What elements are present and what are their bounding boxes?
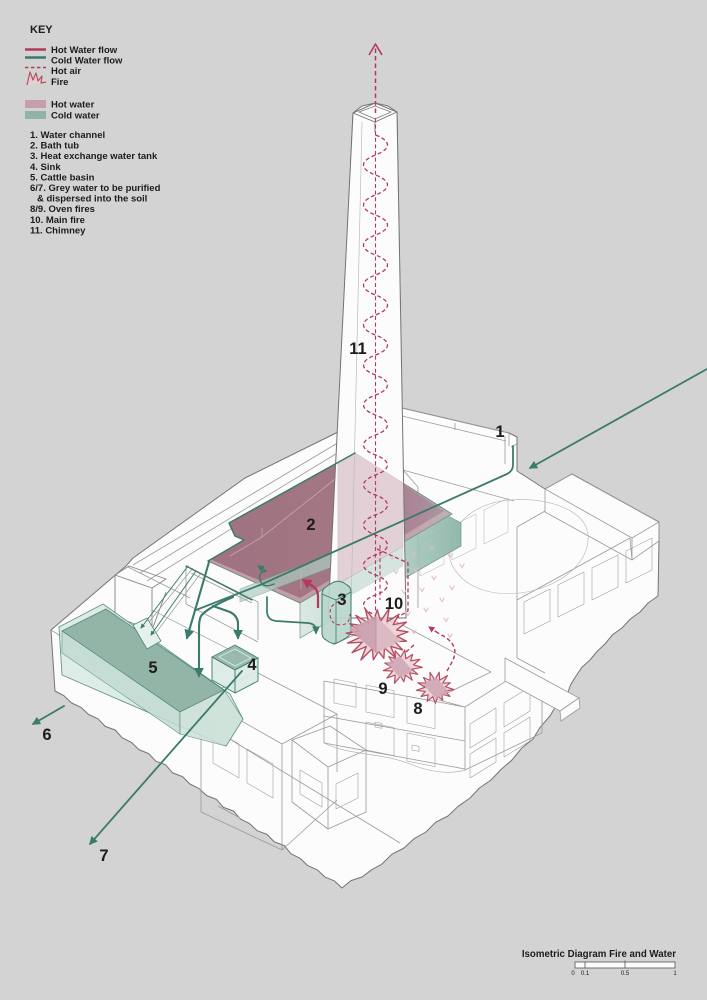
svg-text:6/7. Grey water to be purified: 6/7. Grey water to be purified: [30, 183, 161, 194]
svg-text:3. Heat exchange water tank: 3. Heat exchange water tank: [30, 151, 158, 162]
svg-text:5: 5: [148, 659, 157, 677]
svg-text:3: 3: [337, 591, 346, 609]
svg-text:& dispersed into the soil: & dispersed into the soil: [37, 194, 147, 205]
svg-text:2: 2: [306, 516, 315, 534]
svg-text:11. Chimney: 11. Chimney: [30, 225, 86, 236]
svg-text:Isometric Diagram Fire and Wat: Isometric Diagram Fire and Water: [522, 949, 676, 960]
svg-text:9: 9: [378, 680, 387, 698]
svg-text:0.5: 0.5: [621, 971, 630, 977]
svg-text:10: 10: [385, 595, 403, 613]
svg-text:Hot Water flow: Hot Water flow: [51, 45, 118, 56]
svg-text:KEY: KEY: [30, 24, 53, 36]
svg-text:0.1: 0.1: [581, 971, 590, 977]
svg-text:8: 8: [413, 700, 422, 718]
svg-text:4: 4: [247, 656, 257, 674]
svg-text:11: 11: [349, 340, 366, 358]
svg-text:Hot air: Hot air: [51, 66, 81, 77]
svg-text:Hot water: Hot water: [51, 100, 95, 111]
svg-text:5. Cattle basin: 5. Cattle basin: [30, 172, 95, 183]
svg-text:8/9. Oven fires: 8/9. Oven fires: [30, 204, 95, 215]
svg-text:6: 6: [42, 726, 51, 744]
svg-text:2. Bath tub: 2. Bath tub: [30, 141, 79, 152]
svg-text:4. Sink: 4. Sink: [30, 162, 61, 173]
svg-text:Fire: Fire: [51, 77, 68, 88]
svg-text:10. Main fire: 10. Main fire: [30, 215, 85, 226]
svg-text:1. Water channel: 1. Water channel: [30, 130, 105, 141]
svg-text:7: 7: [99, 847, 108, 865]
svg-text:Cold water: Cold water: [51, 111, 100, 122]
svg-text:Cold Water flow: Cold Water flow: [51, 56, 123, 67]
svg-text:1: 1: [495, 423, 504, 441]
